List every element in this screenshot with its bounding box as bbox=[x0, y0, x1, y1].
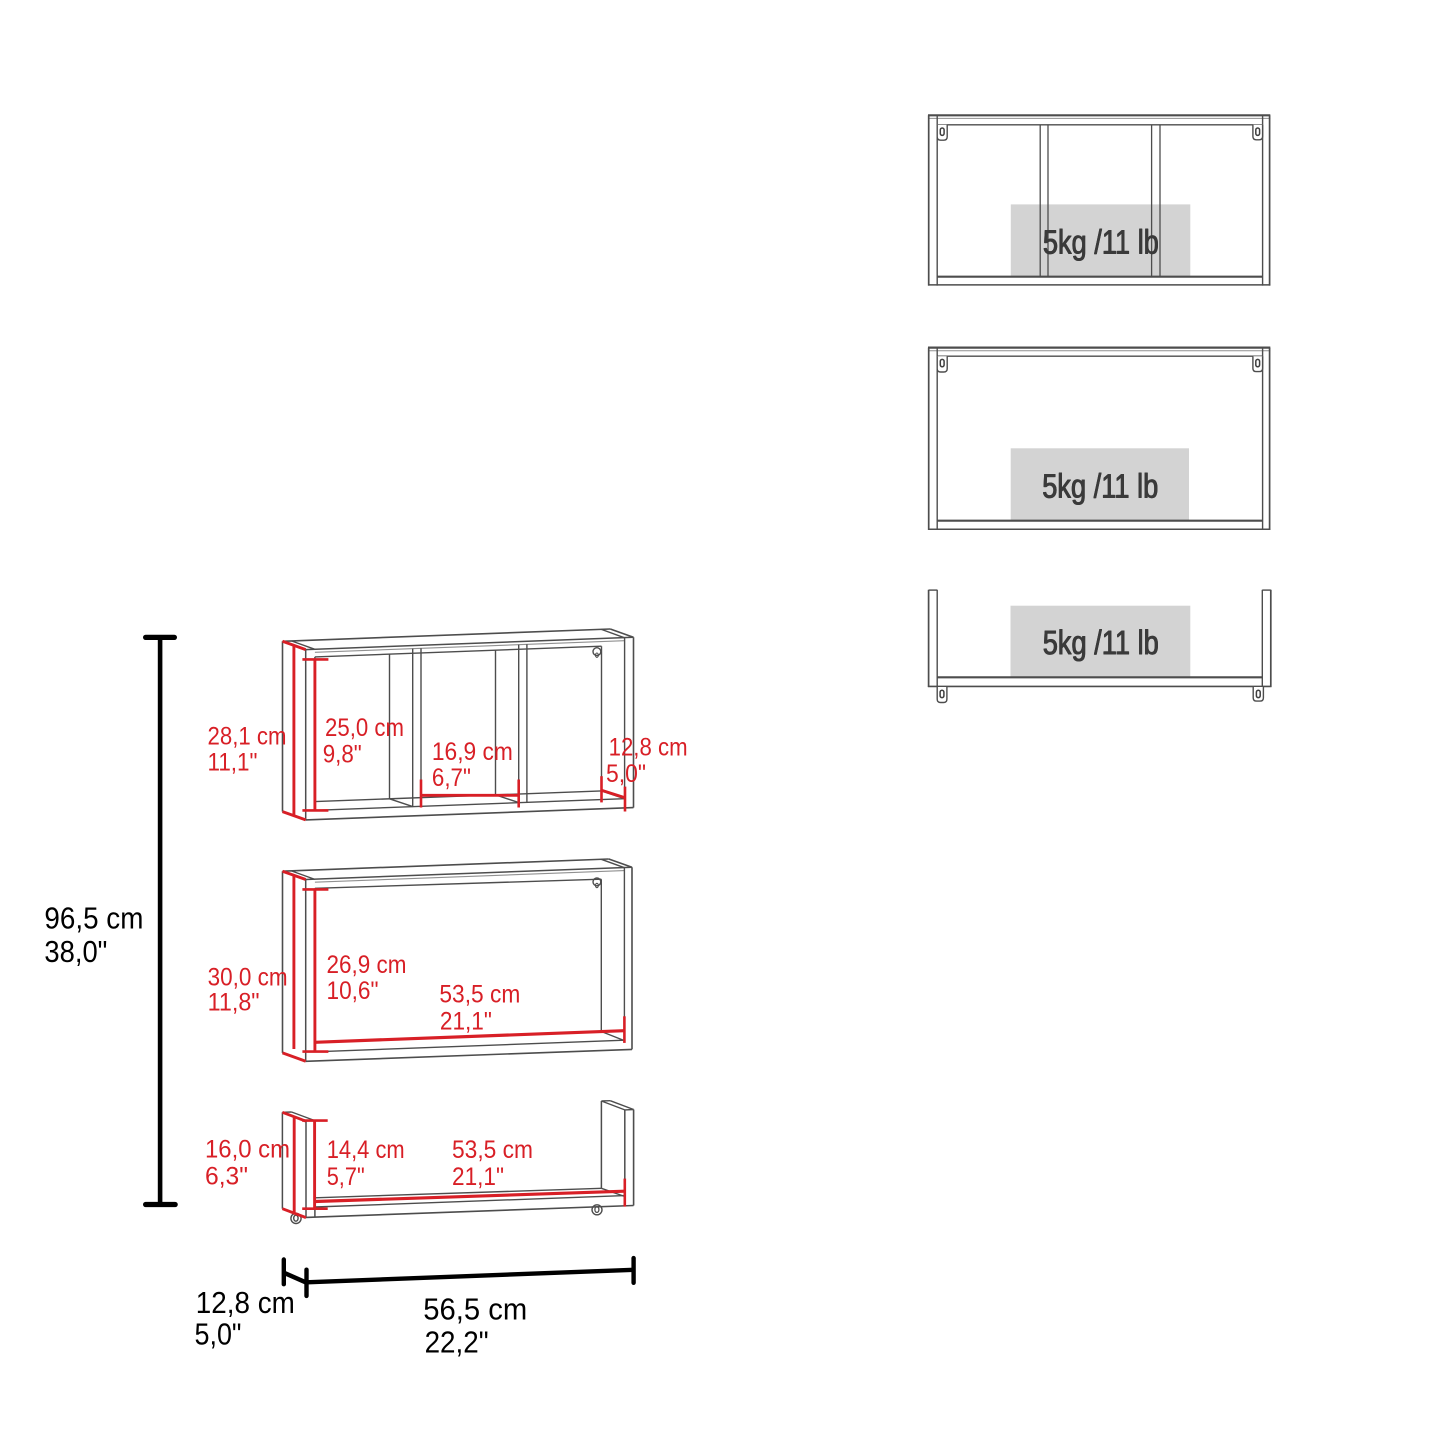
svg-text:14,4 cm: 14,4 cm bbox=[327, 1136, 405, 1164]
svg-text:9,8": 9,8" bbox=[323, 741, 362, 769]
svg-text:5,0": 5,0" bbox=[606, 760, 646, 788]
svg-text:25,0 cm: 25,0 cm bbox=[325, 714, 404, 742]
svg-text:12,8 cm: 12,8 cm bbox=[609, 734, 688, 762]
svg-text:6,3": 6,3" bbox=[205, 1163, 248, 1191]
svg-text:5kg /11 lb: 5kg /11 lb bbox=[1043, 468, 1159, 506]
svg-text:5kg /11 lb: 5kg /11 lb bbox=[1043, 624, 1159, 662]
svg-text:53,5 cm: 53,5 cm bbox=[439, 981, 520, 1009]
svg-text:53,5 cm: 53,5 cm bbox=[452, 1136, 533, 1164]
svg-text:10,6": 10,6" bbox=[327, 977, 379, 1005]
svg-text:5,7": 5,7" bbox=[327, 1163, 365, 1191]
svg-text:22,2": 22,2" bbox=[425, 1324, 489, 1359]
svg-text:16,0 cm: 16,0 cm bbox=[205, 1136, 290, 1164]
svg-text:38,0": 38,0" bbox=[44, 934, 107, 969]
svg-text:6,7": 6,7" bbox=[432, 764, 471, 792]
svg-text:12,8 cm: 12,8 cm bbox=[196, 1285, 295, 1320]
svg-text:21,1": 21,1" bbox=[452, 1163, 504, 1191]
svg-text:96,5 cm: 96,5 cm bbox=[44, 901, 143, 936]
svg-text:56,5 cm: 56,5 cm bbox=[423, 1291, 527, 1326]
svg-text:28,1 cm: 28,1 cm bbox=[208, 723, 287, 751]
svg-text:11,8": 11,8" bbox=[208, 989, 260, 1017]
svg-text:11,1": 11,1" bbox=[208, 748, 258, 776]
svg-text:5kg /11 lb: 5kg /11 lb bbox=[1043, 224, 1159, 262]
svg-text:26,9 cm: 26,9 cm bbox=[327, 951, 407, 979]
svg-text:5,0": 5,0" bbox=[195, 1316, 242, 1351]
svg-text:21,1": 21,1" bbox=[440, 1007, 492, 1035]
svg-text:30,0 cm: 30,0 cm bbox=[208, 963, 288, 991]
svg-text:16,9 cm: 16,9 cm bbox=[432, 738, 513, 766]
